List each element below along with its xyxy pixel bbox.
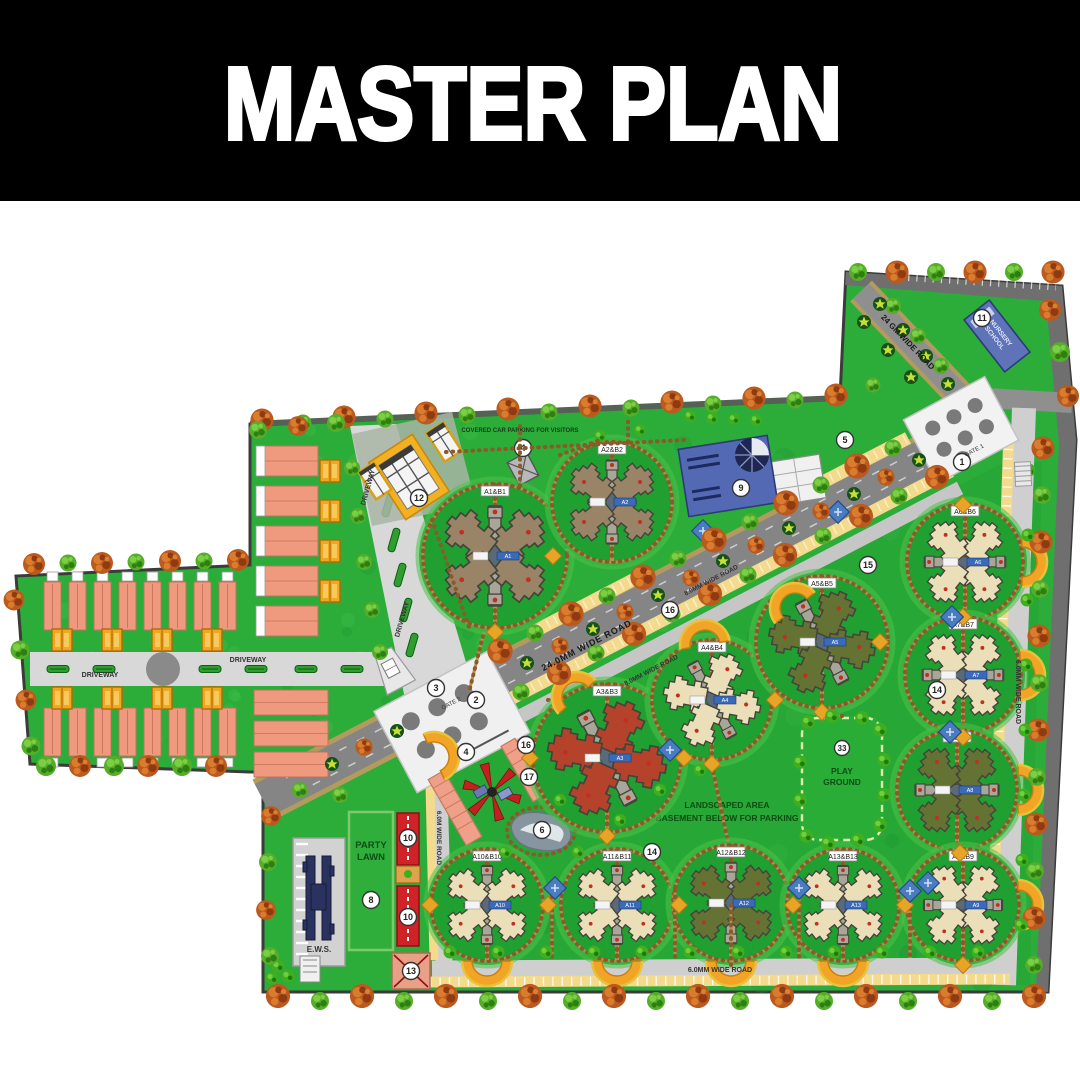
svg-text:DRIVEWAY: DRIVEWAY [230,657,267,664]
svg-text:A8: A8 [967,788,974,794]
svg-text:11: 11 [977,313,987,323]
svg-text:A12: A12 [739,901,749,907]
svg-text:9: 9 [738,483,743,493]
svg-text:E.W.S.: E.W.S. [307,945,331,954]
svg-text:A11&B11: A11&B11 [603,854,632,861]
svg-text:A12&B12: A12&B12 [716,850,746,857]
svg-text:17: 17 [524,772,534,782]
svg-text:PARTY: PARTY [355,840,387,851]
svg-text:A4&B4: A4&B4 [701,645,723,652]
svg-text:A1&B1: A1&B1 [484,489,506,496]
svg-text:LAWN: LAWN [357,852,385,863]
svg-text:LANDSCAPED AREA: LANDSCAPED AREA [684,800,769,810]
svg-text:1: 1 [959,457,964,467]
svg-text:A13: A13 [851,903,861,909]
svg-text:A10: A10 [495,903,505,909]
svg-text:4: 4 [463,747,468,757]
svg-text:A10&B10: A10&B10 [472,854,502,861]
svg-text:MASTER PLAN: MASTER PLAN [224,46,842,161]
svg-text:14: 14 [932,685,942,695]
svg-text:13: 13 [406,966,416,976]
svg-text:16: 16 [665,605,675,615]
svg-text:2: 2 [473,695,478,705]
svg-text:A2: A2 [622,500,629,506]
svg-text:6: 6 [539,825,544,835]
svg-text:12: 12 [414,493,424,503]
svg-text:A11: A11 [625,903,634,909]
svg-text:6.0M WIDE ROAD: 6.0M WIDE ROAD [435,811,442,865]
svg-text:A5: A5 [832,640,839,646]
svg-text:BASEMENT BELOW FOR PARKING: BASEMENT BELOW FOR PARKING [656,813,799,823]
svg-text:A9: A9 [973,903,980,909]
svg-text:14: 14 [647,847,657,857]
svg-text:8: 8 [368,895,373,905]
svg-text:A1: A1 [505,554,512,560]
svg-text:5: 5 [842,435,847,445]
svg-text:A13&B13: A13&B13 [828,854,858,861]
svg-text:A5&B5: A5&B5 [811,581,833,588]
svg-text:6.0MM WIDE ROAD: 6.0MM WIDE ROAD [1014,660,1021,724]
svg-text:15: 15 [863,560,873,570]
svg-text:6.0MM WIDE ROAD: 6.0MM WIDE ROAD [688,967,752,974]
svg-text:33: 33 [838,744,847,753]
svg-text:A2&B2: A2&B2 [601,447,623,454]
svg-text:3: 3 [433,683,438,693]
svg-text:A3&B3: A3&B3 [596,689,618,696]
svg-text:10: 10 [403,912,413,922]
svg-text:A4: A4 [722,698,729,704]
svg-text:PLAY: PLAY [831,766,853,776]
svg-text:DRIVEWAY: DRIVEWAY [82,672,119,679]
svg-text:A6: A6 [975,560,982,566]
svg-text:A3: A3 [617,756,624,762]
svg-text:16: 16 [521,740,531,750]
svg-text:A7: A7 [973,673,980,679]
svg-text:GROUND: GROUND [823,777,861,787]
svg-text:10: 10 [403,833,413,843]
